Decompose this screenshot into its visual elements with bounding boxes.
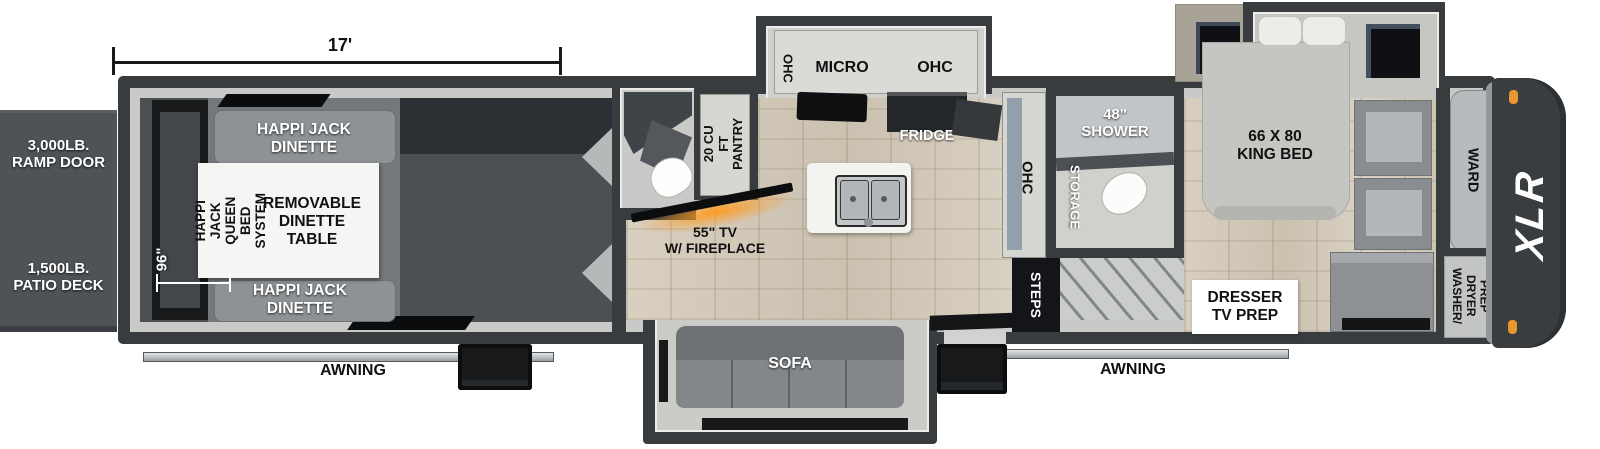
micro-label: MICRO [806,56,878,80]
sofa-label: SOFA [740,352,840,376]
garage-roof-vent-top [217,94,330,107]
brand-logo-wrap: XLR [1498,136,1562,292]
wardrobe-label: WARD [1464,148,1481,192]
bed-pillow-right [1302,16,1346,46]
floorplan-canvas: 17' 3,000LB. RAMP DOOR 1,500LB. PATIO DE… [0,0,1600,449]
entry-door-opening [944,330,1006,344]
bedroom-window [1366,24,1420,78]
marker-light-top [1509,90,1518,104]
shower-label: 48" SHOWER [1056,100,1174,146]
ohc-left-label: OHC [780,54,795,83]
steps-label-wrap: STEPS [1012,258,1060,332]
garage-length-dim-tick-right [559,47,562,75]
dinette-bottom-label: HAPPI JACK DINETTE [208,279,392,321]
sofa-slideout-window-left [659,340,668,402]
garage-width-dim-tick-right [229,274,231,292]
ohc-left-label-wrap: OHC [776,44,798,92]
awning-left-label: AWNING [298,360,408,382]
ohc-tall-label-wrap: OHC [1014,136,1040,220]
removable-table-label: REMOVABLE DINETTE TABLE [246,186,378,258]
garage-floor-dark-band [396,98,612,154]
sink-drain-left [850,196,856,202]
dresser-tv-strip [1342,318,1430,330]
garage-length-dim-line [113,61,562,64]
ohc-tall-label: OHC [1018,161,1035,194]
garage-length-dim-tick-left [112,47,115,75]
storage-label-wrap: STORAGE [1062,158,1086,236]
king-bed-label: 66 X 80 KING BED [1212,124,1338,168]
garage-entry-step [458,344,532,390]
awning-right-label: AWNING [1078,359,1188,381]
marker-light-bottom [1508,320,1517,334]
sink-drain-right [881,196,887,202]
pantry-label: 20 CU FT PANTRY [702,118,746,170]
dresser-label: DRESSER TV PREP [1192,282,1298,332]
bedroom-side-cabinet-lower-panel [1366,190,1422,236]
brand-logo: XLR [1508,166,1553,261]
bedroom-side-cabinet-upper-panel [1366,112,1422,162]
bed-pillow-left [1258,16,1302,46]
bed-foot-bench [1214,206,1336,220]
patio-deck-label: 1,500LB. PATIO DECK [2,251,115,303]
kitchen-counter-end [952,99,1003,141]
sofa-slideout-window [702,418,908,430]
tv-fireplace-label: 55" TV W/ FIREPLACE [650,219,780,261]
stair-landing [1060,258,1184,320]
dinette-top-label: HAPPI JACK DINETTE [214,118,394,160]
storage-label: STORAGE [1067,165,1082,229]
washer-dryer-label: WASHER/ DRYER PREP [1449,268,1490,324]
cooktop [797,92,868,122]
garage-width-dim-label: 96" [155,247,172,271]
main-entry-step [937,344,1007,394]
garage-width-dim-line [157,282,231,284]
pantry-label-wrap: 20 CU FT PANTRY [700,96,748,192]
ohc-right-label: OHC [906,56,964,80]
garage-width-dim-tick-left [156,274,158,292]
garage-length-dim-label: 17' [300,32,380,58]
sink-faucet [864,218,873,227]
garage-width-dim-wrap: 96" [146,236,180,282]
ramp-door-label: 3,000LB. RAMP DOOR [2,128,115,180]
steps-label: STEPS [1028,272,1044,318]
